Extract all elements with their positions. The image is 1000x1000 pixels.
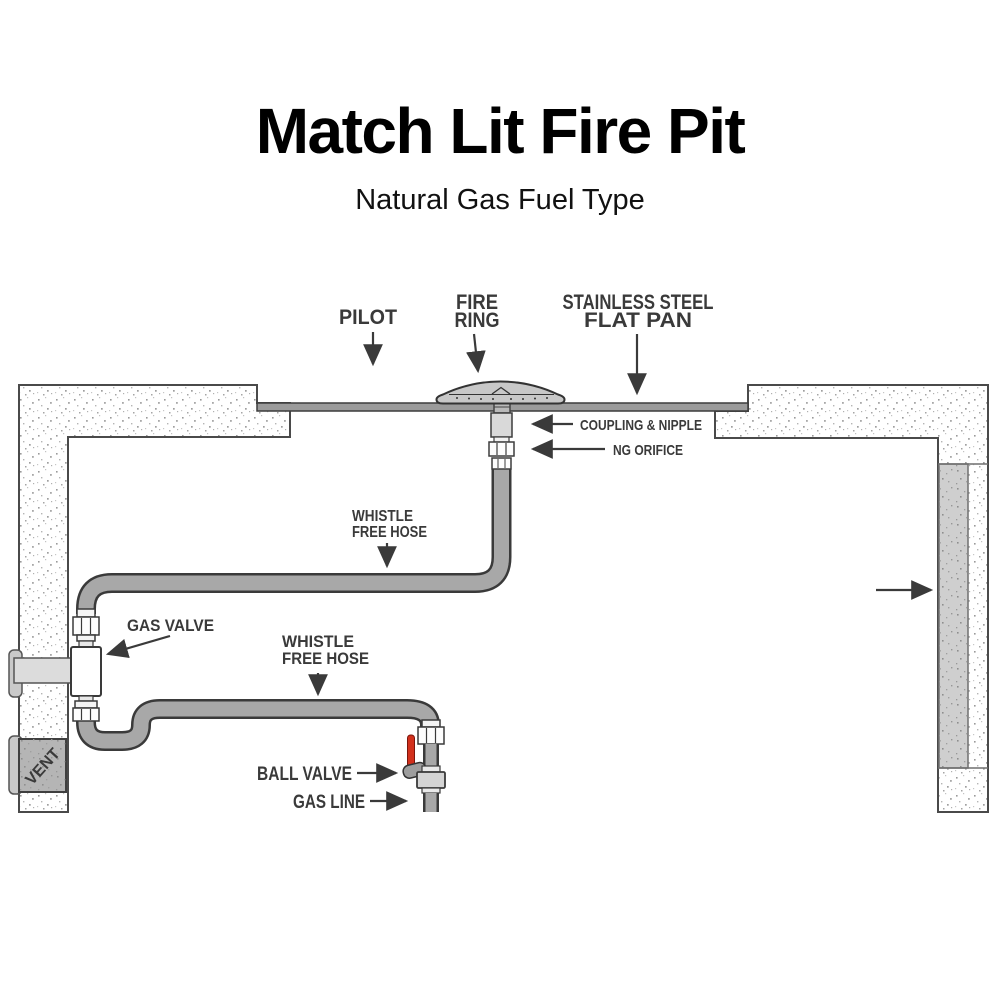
- gas-line-label: GAS LINE: [293, 792, 365, 813]
- page: Match Lit Fire Pit Natural Gas Fuel Type: [0, 0, 1000, 1000]
- whistle-hose-upper-label-line2: FREE HOSE: [352, 524, 427, 541]
- gas-valve-body: [71, 647, 101, 696]
- ball-valve-collar-bottom: [422, 788, 440, 793]
- ng-orifice-nut: [489, 442, 514, 456]
- coupling-nipple-label: COUPLING & NIPPLE: [580, 417, 702, 434]
- callouts: PILOT FIRE RING STAINLESS STEEL FLAT PAN…: [108, 291, 931, 813]
- hose-lower-fill: [86, 709, 430, 741]
- ball-valve-assembly: [402, 720, 445, 812]
- gas-valve-assembly: [71, 609, 101, 721]
- ball-valve-label: BALL VALVE: [257, 764, 352, 785]
- firepit-diagram: VENT: [0, 0, 1000, 1000]
- fire-ring-label-line2: RING: [455, 309, 500, 332]
- ng-orifice-label: NG ORIFICE: [613, 442, 683, 459]
- whistle-free-hose-lower: [86, 709, 430, 741]
- fire-ring-arrow: [474, 334, 478, 371]
- hose-upper-outline: [86, 465, 502, 614]
- ball-valve-nut: [418, 727, 444, 744]
- whistle-hose-lower-label-line2: FREE HOSE: [282, 649, 369, 668]
- coupling-nipple: [491, 413, 512, 437]
- gas-valve-label: GAS VALVE: [127, 616, 214, 635]
- ball-valve-collar-top: [422, 720, 440, 727]
- flat-pan-label-line2: FLAT PAN: [584, 309, 692, 332]
- whistle-free-hose-upper: [86, 465, 502, 614]
- right-wall-inner-panel-texture: [939, 464, 968, 768]
- vent: VENT: [9, 736, 66, 794]
- ball-valve-body: [417, 772, 445, 788]
- gas-valve-arrow: [108, 636, 170, 654]
- valve-stem-shaft: [14, 658, 72, 683]
- gas-valve-collar-top: [77, 609, 95, 617]
- ng-orifice-nut-small: [492, 458, 511, 469]
- gas-valve-collar-2: [77, 635, 95, 641]
- right-wall: [715, 385, 988, 812]
- fire-ring: [437, 382, 565, 404]
- gas-valve-nut-top: [73, 617, 99, 635]
- pilot-label: PILOT: [339, 306, 397, 329]
- whistle-hose-upper-label-line1: WHISTLE: [352, 508, 413, 525]
- gas-valve-collar-3: [75, 701, 97, 708]
- gas-valve-nut-bottom: [73, 708, 99, 721]
